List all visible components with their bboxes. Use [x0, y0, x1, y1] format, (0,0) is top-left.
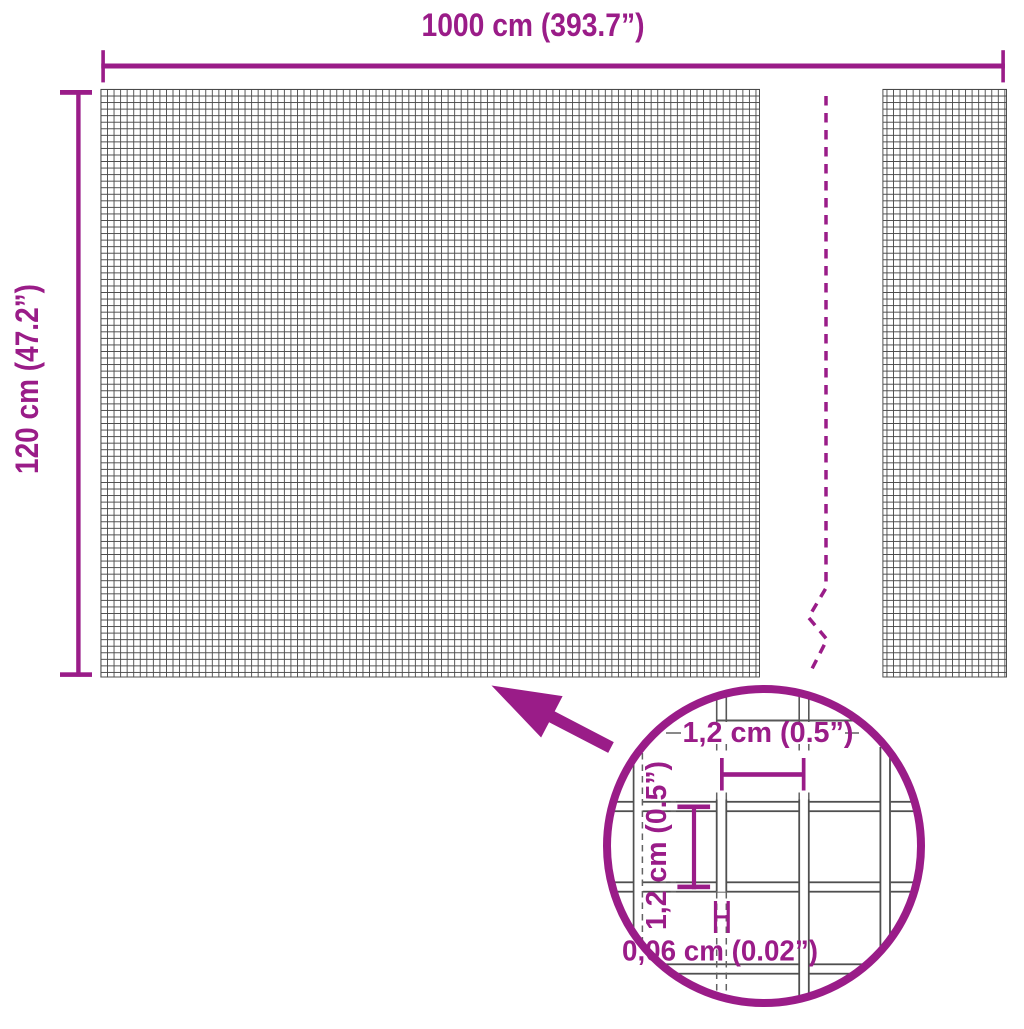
svg-text:0,06 cm (0.02”): 0,06 cm (0.02”)	[622, 936, 818, 968]
svg-text:1000 cm (393.7”): 1000 cm (393.7”)	[422, 7, 645, 43]
svg-text:1,2 cm (0.5”): 1,2 cm (0.5”)	[683, 717, 854, 749]
svg-text:1,2 cm (0.5”): 1,2 cm (0.5”)	[641, 761, 673, 930]
svg-text:120 cm (47.2”): 120 cm (47.2”)	[9, 284, 45, 474]
